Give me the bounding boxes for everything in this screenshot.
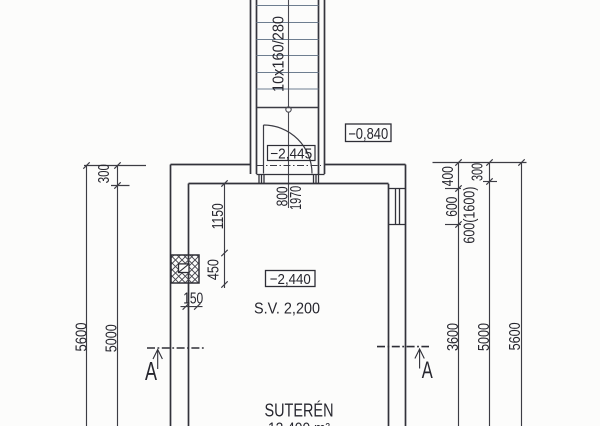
svg-text:400: 400 — [440, 166, 457, 186]
svg-text:5000: 5000 — [103, 324, 120, 352]
svg-text:SUTERÉN: SUTERÉN — [265, 399, 334, 420]
svg-text:−2,440: −2,440 — [270, 271, 311, 288]
svg-text:S.V. 2,200: S.V. 2,200 — [254, 301, 320, 318]
svg-text:12,400 m²: 12,400 m² — [268, 420, 330, 426]
svg-text:600(1600): 600(1600) — [461, 187, 478, 244]
svg-text:−0,840: −0,840 — [348, 126, 388, 143]
svg-text:5000: 5000 — [476, 323, 493, 351]
svg-text:600: 600 — [444, 197, 461, 217]
svg-text:5600: 5600 — [73, 322, 90, 351]
svg-text:300: 300 — [96, 164, 113, 183]
svg-text:A: A — [422, 357, 433, 384]
svg-text:3600: 3600 — [445, 323, 462, 351]
svg-text:1150: 1150 — [210, 203, 227, 229]
svg-text:−2,445: −2,445 — [270, 145, 312, 162]
svg-text:450: 450 — [206, 259, 223, 280]
svg-text:A: A — [145, 356, 157, 386]
svg-text:10x160/280: 10x160/280 — [271, 16, 288, 92]
svg-text:1970: 1970 — [288, 186, 305, 210]
svg-text:5600: 5600 — [507, 322, 524, 350]
svg-text:300: 300 — [470, 163, 487, 181]
svg-text:150: 150 — [183, 291, 203, 308]
